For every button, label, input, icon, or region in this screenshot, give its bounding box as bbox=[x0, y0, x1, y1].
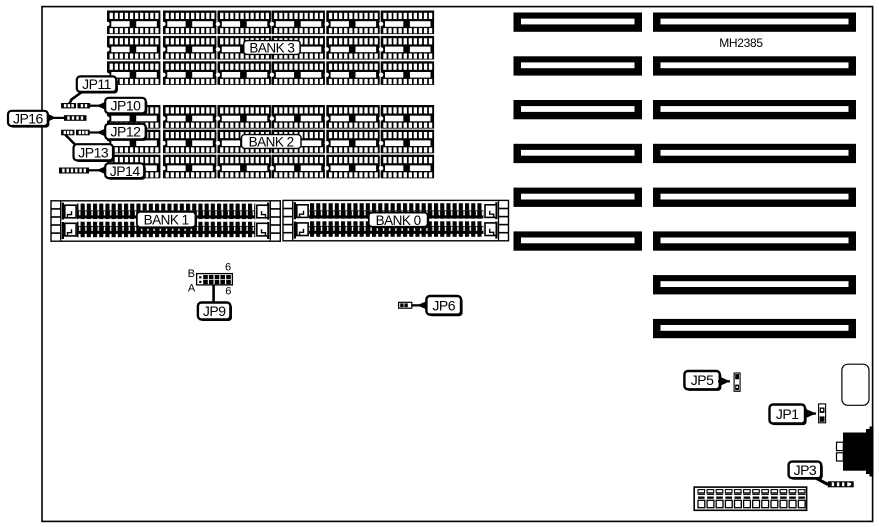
svg-text:6: 6 bbox=[225, 285, 231, 297]
svg-text:BANK 0: BANK 0 bbox=[376, 213, 421, 228]
svg-text:6: 6 bbox=[225, 262, 231, 274]
svg-text:BANK 1: BANK 1 bbox=[144, 213, 189, 228]
svg-text:B: B bbox=[188, 268, 195, 280]
svg-text:JP5: JP5 bbox=[691, 372, 714, 388]
svg-text:JP9: JP9 bbox=[203, 303, 226, 319]
svg-text:BANK 2: BANK 2 bbox=[249, 135, 294, 150]
svg-text:JP3: JP3 bbox=[794, 462, 817, 478]
svg-text:BANK 3: BANK 3 bbox=[249, 41, 294, 56]
svg-text:JP11: JP11 bbox=[82, 76, 112, 92]
svg-text:JP12: JP12 bbox=[111, 124, 142, 140]
svg-text:JP10: JP10 bbox=[111, 98, 142, 114]
svg-text:MH2385: MH2385 bbox=[719, 36, 763, 50]
svg-text:JP6: JP6 bbox=[432, 297, 455, 313]
svg-text:JP16: JP16 bbox=[13, 111, 44, 127]
svg-text:JP13: JP13 bbox=[78, 144, 109, 160]
svg-text:A: A bbox=[188, 282, 196, 294]
svg-text:JP1: JP1 bbox=[776, 406, 799, 422]
svg-text:JP14: JP14 bbox=[110, 163, 141, 179]
